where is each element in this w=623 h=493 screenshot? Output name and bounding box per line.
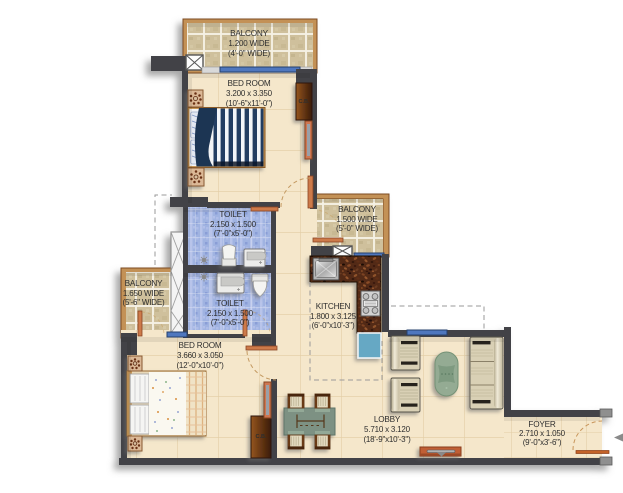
svg-text:(9'-0"x3'-6"): (9'-0"x3'-6") <box>523 438 562 447</box>
svg-text:(4'-0" WIDE): (4'-0" WIDE) <box>228 49 271 58</box>
svg-text:(7'-0"x5'-0"): (7'-0"x5'-0") <box>214 229 253 238</box>
svg-text:BALCONY: BALCONY <box>230 29 268 38</box>
svg-text:1.500 WIDE: 1.500 WIDE <box>336 215 377 224</box>
svg-text:BALCONY: BALCONY <box>338 205 376 214</box>
svg-text:TOILET: TOILET <box>216 299 244 308</box>
svg-text:(6'-0"x10'-3"): (6'-0"x10'-3") <box>312 321 355 330</box>
svg-text:2.150 x 1.500: 2.150 x 1.500 <box>210 220 257 229</box>
svg-text:(18'-9"x10'-3"): (18'-9"x10'-3") <box>363 435 411 444</box>
svg-text:(5'-6" WIDE): (5'-6" WIDE) <box>123 298 166 307</box>
svg-text:2.150 x 1.500: 2.150 x 1.500 <box>207 309 254 318</box>
svg-text:2.710 x 1.050: 2.710 x 1.050 <box>519 429 566 438</box>
svg-text:BED ROOM: BED ROOM <box>179 341 222 350</box>
svg-text:3.660 x 3.050: 3.660 x 3.050 <box>177 351 224 360</box>
svg-text:C.B.: C.B. <box>299 99 310 105</box>
svg-text:FOYER: FOYER <box>528 420 555 429</box>
svg-text:C.B.: C.B. <box>256 434 267 440</box>
svg-text:3.200 x 3.350: 3.200 x 3.350 <box>226 89 273 98</box>
svg-text:LOBBY: LOBBY <box>374 415 401 424</box>
svg-text:TOILET: TOILET <box>219 210 247 219</box>
svg-text:1.200 WIDE: 1.200 WIDE <box>228 39 269 48</box>
svg-text:1.800 x 3.125: 1.800 x 3.125 <box>310 312 357 321</box>
svg-text:BALCONY: BALCONY <box>125 279 163 288</box>
svg-text:1.650 WIDE: 1.650 WIDE <box>123 289 164 298</box>
svg-text:(7'-0"x5'-0"): (7'-0"x5'-0") <box>211 318 250 327</box>
svg-text:BED ROOM: BED ROOM <box>228 79 271 88</box>
svg-text:(5'-0" WIDE): (5'-0" WIDE) <box>336 224 379 233</box>
svg-text:KITCHEN: KITCHEN <box>316 302 351 311</box>
svg-text:(12'-0"x10'-0"): (12'-0"x10'-0") <box>176 361 224 370</box>
svg-text:5.710 x 3.120: 5.710 x 3.120 <box>364 425 411 434</box>
svg-text:(10'-6"x11'-0"): (10'-6"x11'-0") <box>226 99 273 108</box>
